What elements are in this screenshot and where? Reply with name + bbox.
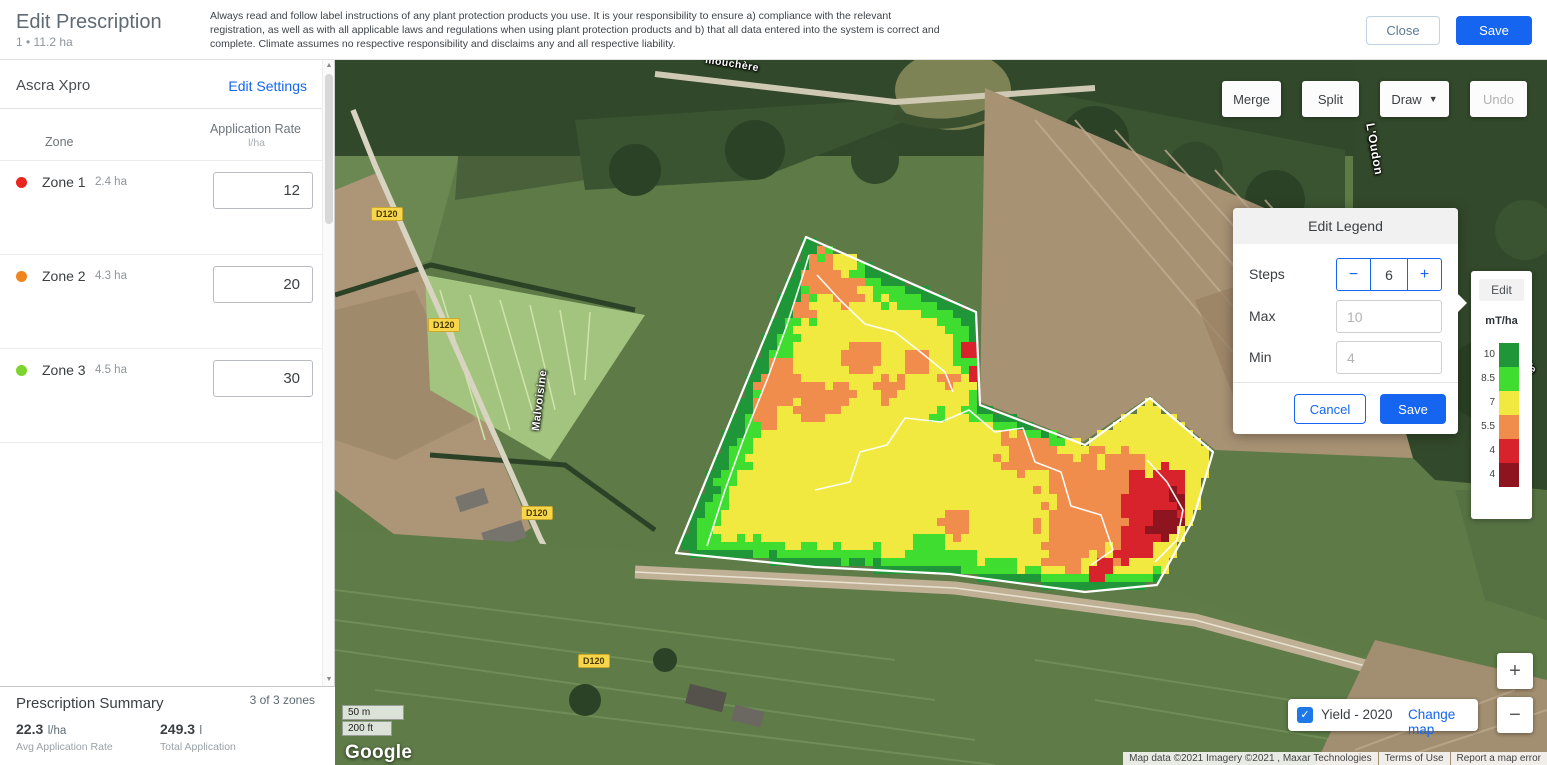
zone-row-2: Zone 2 4.3 ha <box>0 255 323 349</box>
avg-rate-value: 22.3 <box>16 721 43 737</box>
change-map-link[interactable]: Change map <box>1408 707 1478 737</box>
steps-increment-button[interactable]: + <box>1407 259 1441 290</box>
google-logo: Google <box>345 742 412 764</box>
zone3-rate-input[interactable] <box>213 360 313 397</box>
min-label: Min <box>1249 349 1272 365</box>
rate-column-header: Application Rate <box>210 122 301 136</box>
legend-cancel-button[interactable]: Cancel <box>1294 394 1366 424</box>
undo-button[interactable]: Undo <box>1470 81 1527 117</box>
edit-legend-title: Edit Legend <box>1233 208 1458 244</box>
zone2-name: Zone 2 <box>42 268 86 284</box>
steps-value: 6 <box>1371 259 1407 290</box>
disclaimer-text: Always read and follow label instruction… <box>210 10 940 52</box>
rate-unit-label: l/ha <box>248 137 265 149</box>
edit-legend-footer: Cancel Save <box>1233 382 1458 434</box>
zones-sidebar: Ascra Xpro Edit Settings Zone Applicatio… <box>0 60 335 765</box>
legend-swatch-1 <box>1499 343 1519 367</box>
scroll-up-icon[interactable]: ▲ <box>323 60 335 72</box>
steps-decrement-button[interactable]: − <box>1337 259 1371 290</box>
zone-row-3: Zone 3 4.5 ha <box>0 349 323 443</box>
zone-row-1: Zone 1 2.4 ha <box>0 161 323 255</box>
save-button[interactable]: Save <box>1456 16 1532 45</box>
merge-button[interactable]: Merge <box>1222 81 1281 117</box>
total-label: Total Application <box>160 741 236 753</box>
zoom-in-button[interactable]: + <box>1497 653 1533 689</box>
close-button[interactable]: Close <box>1366 16 1440 45</box>
sidebar-scrollbar[interactable]: ▲ ▼ <box>322 60 334 686</box>
legend-swatch-3 <box>1499 391 1519 415</box>
legend-label-6: 4 <box>1471 463 1495 487</box>
max-label: Max <box>1249 308 1275 324</box>
road-badge-4: D120 <box>578 654 610 668</box>
scroll-down-icon[interactable]: ▼ <box>323 674 335 686</box>
map-canvas[interactable]: mouchère Malvoisine L'Oudon Te Merge Spl… <box>335 60 1547 765</box>
product-row: Ascra Xpro Edit Settings <box>0 60 323 109</box>
prescription-summary: Prescription Summary 3 of 3 zones 22.3 l… <box>0 686 335 765</box>
edit-settings-link[interactable]: Edit Settings <box>228 78 307 94</box>
legend-label-3: 7 <box>1471 391 1495 415</box>
page-subtitle: 1 • 11.2 ha <box>16 35 73 49</box>
popover-arrow <box>1458 294 1467 312</box>
zone1-color-dot <box>16 177 27 188</box>
summary-title: Prescription Summary <box>16 695 164 712</box>
attribution-text: Map data ©2021 Imagery ©2021 , Maxar Tec… <box>1123 752 1377 765</box>
road-badge-2: D120 <box>428 318 460 332</box>
layer-toggle-panel: ✓ Yield - 2020 Change map <box>1288 699 1478 731</box>
steps-stepper: − 6 + <box>1336 258 1442 291</box>
road-badge-1: D120 <box>371 207 403 221</box>
zone2-color-dot <box>16 271 27 282</box>
zone1-name: Zone 1 <box>42 174 86 190</box>
legend-swatch-6 <box>1499 463 1519 487</box>
page-title: Edit Prescription <box>16 11 162 34</box>
draw-button[interactable]: Draw ▼ <box>1380 81 1449 117</box>
avg-rate-stat: 22.3 l/ha Avg Application Rate <box>16 721 113 753</box>
zone1-rate-input[interactable] <box>213 172 313 209</box>
steps-label: Steps <box>1249 266 1285 282</box>
yield-layer-checkbox[interactable]: ✓ <box>1297 707 1313 723</box>
legend-label-2: 8.5 <box>1471 367 1495 391</box>
draw-button-label: Draw <box>1391 92 1421 107</box>
min-input[interactable] <box>1336 341 1442 374</box>
edit-legend-popover: Edit Legend Steps − 6 + Max Min Cancel S… <box>1233 208 1458 434</box>
legend-edit-button[interactable]: Edit <box>1479 279 1524 301</box>
total-unit: l <box>200 725 203 737</box>
zone3-color-dot <box>16 365 27 376</box>
zone-column-header: Zone <box>45 135 74 149</box>
product-name: Ascra Xpro <box>16 77 90 94</box>
chevron-down-icon: ▼ <box>1429 94 1438 104</box>
total-application-stat: 249.3 l Total Application <box>160 721 236 753</box>
app-header: Edit Prescription 1 • 11.2 ha Always rea… <box>0 0 1547 60</box>
zoom-out-button[interactable]: − <box>1497 697 1533 733</box>
legend-label-1: 10 <box>1471 343 1495 367</box>
zone1-area: 2.4 ha <box>95 176 127 188</box>
avg-rate-label: Avg Application Rate <box>16 741 113 753</box>
legend-swatch-2 <box>1499 367 1519 391</box>
zone2-area: 4.3 ha <box>95 270 127 282</box>
legend-label-5: 4 <box>1471 439 1495 463</box>
scale-imperial: 200 ft <box>342 721 392 736</box>
legend-card: Edit mT/ha 10 8.5 7 5.5 4 4 <box>1471 271 1532 519</box>
legend-save-button[interactable]: Save <box>1380 394 1446 424</box>
legend-label-4: 5.5 <box>1471 415 1495 439</box>
legend-swatch-4 <box>1499 415 1519 439</box>
zone-table-header: Zone Application Rate l/ha <box>0 109 323 161</box>
terms-link[interactable]: Terms of Use <box>1379 752 1450 765</box>
total-value: 249.3 <box>160 721 195 737</box>
report-error-link[interactable]: Report a map error <box>1451 752 1547 765</box>
legend-swatch-5 <box>1499 439 1519 463</box>
road-badge-3: D120 <box>521 506 553 520</box>
split-button[interactable]: Split <box>1302 81 1359 117</box>
yield-layer-label: Yield - 2020 <box>1321 707 1393 722</box>
scrollbar-thumb[interactable] <box>325 74 333 224</box>
legend-unit: mT/ha <box>1471 315 1532 327</box>
max-input[interactable] <box>1336 300 1442 333</box>
zones-count: 3 of 3 zones <box>250 693 315 707</box>
zone3-name: Zone 3 <box>42 362 86 378</box>
avg-rate-unit: l/ha <box>48 725 67 737</box>
zone3-area: 4.5 ha <box>95 364 127 376</box>
map-attribution: Map data ©2021 Imagery ©2021 , Maxar Tec… <box>1123 752 1547 765</box>
zone2-rate-input[interactable] <box>213 266 313 303</box>
scale-metric: 50 m <box>342 705 404 720</box>
